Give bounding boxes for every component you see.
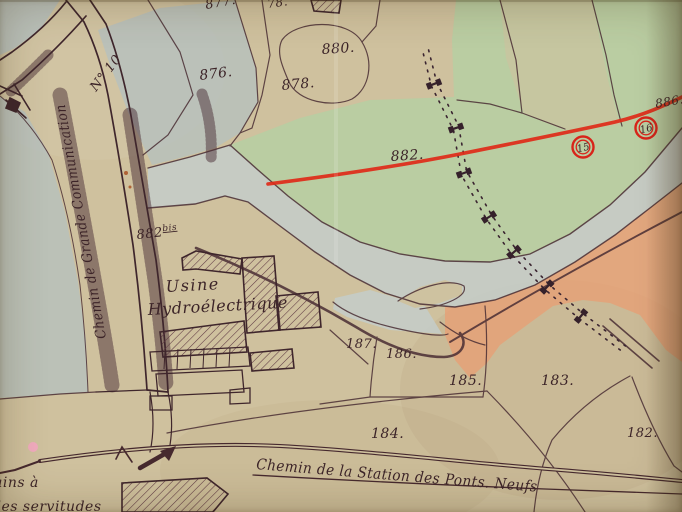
edge-shadow-top (0, 0, 682, 2)
parcel-label-184: 184. (371, 426, 404, 442)
usine-label-line1: Usine (165, 274, 220, 296)
parcel-label-882: 882. (390, 147, 424, 165)
rust-speck (124, 171, 128, 175)
parcel-label-878: 878. (281, 75, 315, 94)
route-marker-15: 15 (573, 137, 594, 158)
note-line2: des servitudes (0, 499, 102, 512)
parcel-label-185: 185. (449, 373, 482, 389)
edge-shadow (646, 0, 682, 512)
parcel-label-880: 880. (321, 40, 355, 58)
parcel-label-183: 183. (541, 373, 574, 389)
paper-crease (334, 0, 338, 265)
building-hatched (122, 478, 228, 512)
pink-dot (28, 442, 38, 452)
cadastral-map: 15 16 877. 78. 876. 878. 880. 882. 886. … (0, 0, 682, 512)
rust-speck (129, 186, 132, 189)
usine-building-annex (250, 349, 294, 371)
note-line1: ains à (0, 475, 39, 491)
map-canvas: 15 16 877. 78. 876. 878. 880. 882. 886. … (0, 0, 682, 512)
parcel-label-186: 186. (386, 347, 417, 362)
parcel-label-187: 187. (346, 337, 377, 352)
